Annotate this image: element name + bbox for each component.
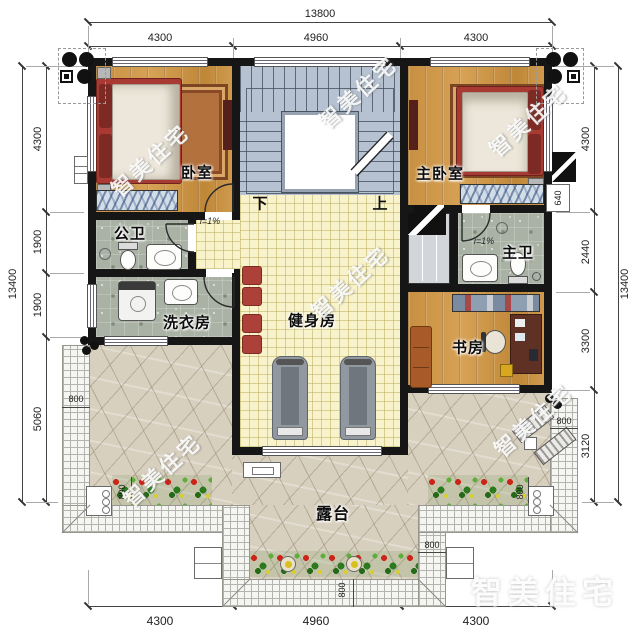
wall-master-bedroom-bottom: [490, 205, 552, 213]
wall-public-bath-right: [188, 212, 196, 224]
window-laundry-bottom: [104, 336, 168, 346]
gym-sofa-module: [242, 335, 262, 354]
flower-bed-right: [428, 475, 528, 505]
washing-machine: [118, 281, 156, 321]
dim-value: 13400: [7, 269, 19, 300]
stair-down-label: 下: [252, 193, 267, 214]
slope-label: i=1%: [474, 236, 494, 246]
dim-value: 13800: [305, 8, 336, 20]
toilet-tank: [508, 276, 528, 284]
corner-planter-left: [86, 486, 112, 516]
washer-panel: [119, 282, 155, 290]
window-study-bottom: [428, 384, 520, 394]
floor-drain: [532, 272, 541, 281]
wall-gym-bottom: [232, 447, 262, 455]
walkway-dim-line: [550, 428, 578, 429]
treadmill-belt: [281, 367, 299, 425]
master-bath-label: 主卫: [502, 242, 534, 263]
bed-pillow: [99, 134, 112, 178]
extension-line: [50, 337, 84, 338]
walkway-dim: 800: [337, 582, 347, 597]
walkway-dim-line: [62, 407, 90, 408]
floor-plan-page: { "plan": { "watermark": "智美住宅", "rooms"…: [0, 0, 640, 625]
round-planter: [346, 556, 362, 572]
extension-line: [26, 502, 58, 503]
desk-chair: [484, 330, 506, 354]
desk-chair-mat: [529, 349, 538, 361]
dim-value: 2440: [580, 240, 592, 264]
walkway-dim: 800: [515, 484, 525, 499]
corner-column: [546, 52, 561, 67]
corridor-floor: [196, 220, 240, 269]
extension-line: [50, 273, 84, 274]
gym-sofa-module: [242, 314, 262, 333]
bookshelf: [452, 294, 540, 312]
planter-pot: [102, 498, 110, 506]
treadmill: [340, 356, 376, 440]
round-planter: [280, 556, 296, 572]
sink-basin: [154, 250, 176, 266]
extension-line: [233, 38, 234, 58]
laundry-label: 洗衣房: [163, 312, 211, 333]
sink-basin: [172, 285, 192, 301]
terrace-label: 露台: [316, 500, 350, 524]
flue-dim-value: 640: [553, 190, 563, 205]
walkway-dim: 800: [556, 416, 571, 426]
treadmill-base: [345, 427, 371, 436]
treadmill-console: [276, 359, 304, 365]
shower-head: [99, 248, 111, 260]
public-bath-label: 公卫: [114, 223, 146, 244]
corner-column: [563, 52, 578, 67]
bed-pillow: [528, 134, 541, 174]
dim-value: 4960: [304, 32, 328, 44]
planter-pot: [533, 498, 541, 506]
sink: [462, 254, 498, 282]
dim-line: [88, 22, 552, 23]
extension-line: [88, 570, 89, 604]
watermark-large: 智美住宅: [471, 568, 619, 613]
treadmill-base: [277, 427, 303, 436]
desk-paper: [515, 333, 525, 341]
wall-gym-bottom: [382, 447, 408, 455]
planter-flower: [285, 561, 292, 568]
toilet-bowl: [120, 250, 136, 270]
wall-bath-laundry: [88, 269, 196, 277]
wardrobe: [96, 190, 178, 211]
dim-value: 3300: [580, 329, 592, 353]
corner-planter-right: [528, 486, 554, 516]
wall-stair-right: [400, 58, 408, 195]
dim-value: 3120: [580, 434, 592, 458]
gym-sofa-module: [242, 266, 262, 285]
wall-stair-left: [232, 58, 240, 220]
master-bedroom-label: 主卧室: [416, 163, 464, 184]
corner-column: [60, 70, 73, 83]
stair-void: [282, 112, 358, 192]
sink: [146, 244, 182, 270]
extension-line: [556, 212, 590, 213]
planter-pot: [533, 490, 541, 498]
terrace-step-left: [194, 547, 222, 579]
extension-line: [400, 38, 401, 58]
terrace-walkway-bottom-center: [222, 579, 446, 607]
corner-column: [62, 52, 77, 67]
dim-value: 4300: [32, 127, 44, 151]
sink-basin: [470, 261, 492, 277]
planter-flower: [351, 561, 358, 568]
wall-master-bedroom-bottom: [444, 205, 462, 213]
walkway-dim: 800: [68, 394, 83, 404]
sliding-door-gym-terrace: [262, 446, 382, 456]
gym-sofa-module: [242, 287, 262, 306]
dim-line: [88, 46, 552, 47]
corner-column: [90, 341, 99, 350]
study-sofa: [410, 326, 432, 388]
extension-line: [556, 292, 590, 293]
study-label: 书房: [452, 337, 484, 358]
corner-column: [79, 52, 94, 67]
door-step-inner: [252, 467, 274, 475]
dim-value: 4300: [147, 614, 174, 628]
stool: [500, 364, 513, 377]
dim-line: [22, 66, 23, 502]
walkway-dim-line: [528, 477, 529, 503]
sink: [164, 279, 198, 305]
shower-head: [496, 222, 508, 234]
terrace-step-right: [446, 547, 474, 579]
wall-master-bath-left: [450, 213, 458, 284]
corner-column: [567, 70, 580, 83]
dim-value: 4300: [464, 32, 488, 44]
extension-line: [50, 212, 84, 213]
planter-pot: [102, 490, 110, 498]
corner-column: [77, 69, 92, 84]
flower-bed-center: [250, 551, 418, 577]
dim-value: 5060: [32, 407, 44, 431]
desk-paper: [515, 319, 525, 327]
treadmill: [272, 356, 308, 440]
dim-value: 4300: [463, 614, 490, 628]
slope-label: i=1%: [200, 216, 220, 226]
wall-gym-right: [400, 195, 408, 455]
window-laundry-left: [87, 284, 97, 328]
sofa-seam: [413, 347, 429, 348]
tv-cabinet: [223, 100, 232, 150]
dim-value: 1900: [32, 230, 44, 254]
wall-gym-left: [232, 273, 240, 455]
dim-value: 1900: [32, 293, 44, 317]
wall-public-bath-right: [188, 252, 196, 269]
extension-line: [582, 502, 614, 503]
planter-pot: [533, 506, 541, 514]
dim-value: 4300: [148, 32, 172, 44]
stair-up-label: 上: [372, 193, 387, 214]
window-master-top: [430, 57, 530, 67]
wall-study-top: [408, 284, 552, 292]
walkway-dim-line: [418, 552, 446, 553]
dim-value: 13400: [619, 269, 631, 300]
washer-drum: [130, 296, 146, 312]
door-step: [243, 462, 281, 478]
exterior-vent: [74, 156, 88, 184]
exterior-flue: [552, 152, 576, 182]
corner-column: [82, 346, 91, 355]
treadmill-console: [344, 359, 372, 365]
dim-value: 4300: [580, 127, 592, 151]
wardrobe: [460, 184, 544, 204]
wall-master-bedroom-bottom: [400, 205, 414, 213]
tv-cabinet: [409, 100, 418, 150]
dim-value: 4960: [303, 614, 330, 628]
wall-corridor-laundry: [196, 269, 206, 277]
dim-line: [594, 66, 595, 502]
corner-column: [80, 336, 89, 345]
walkway-dim: 800: [424, 540, 439, 550]
desk: [510, 314, 542, 374]
bedroom-label: 卧室: [181, 162, 213, 183]
sofa-seam: [413, 367, 429, 368]
window-bedroom-top: [112, 57, 208, 67]
treadmill-belt: [349, 367, 367, 425]
dim-line: [46, 66, 47, 502]
walkway-dim-line: [353, 579, 354, 607]
planter-pot: [102, 506, 110, 514]
